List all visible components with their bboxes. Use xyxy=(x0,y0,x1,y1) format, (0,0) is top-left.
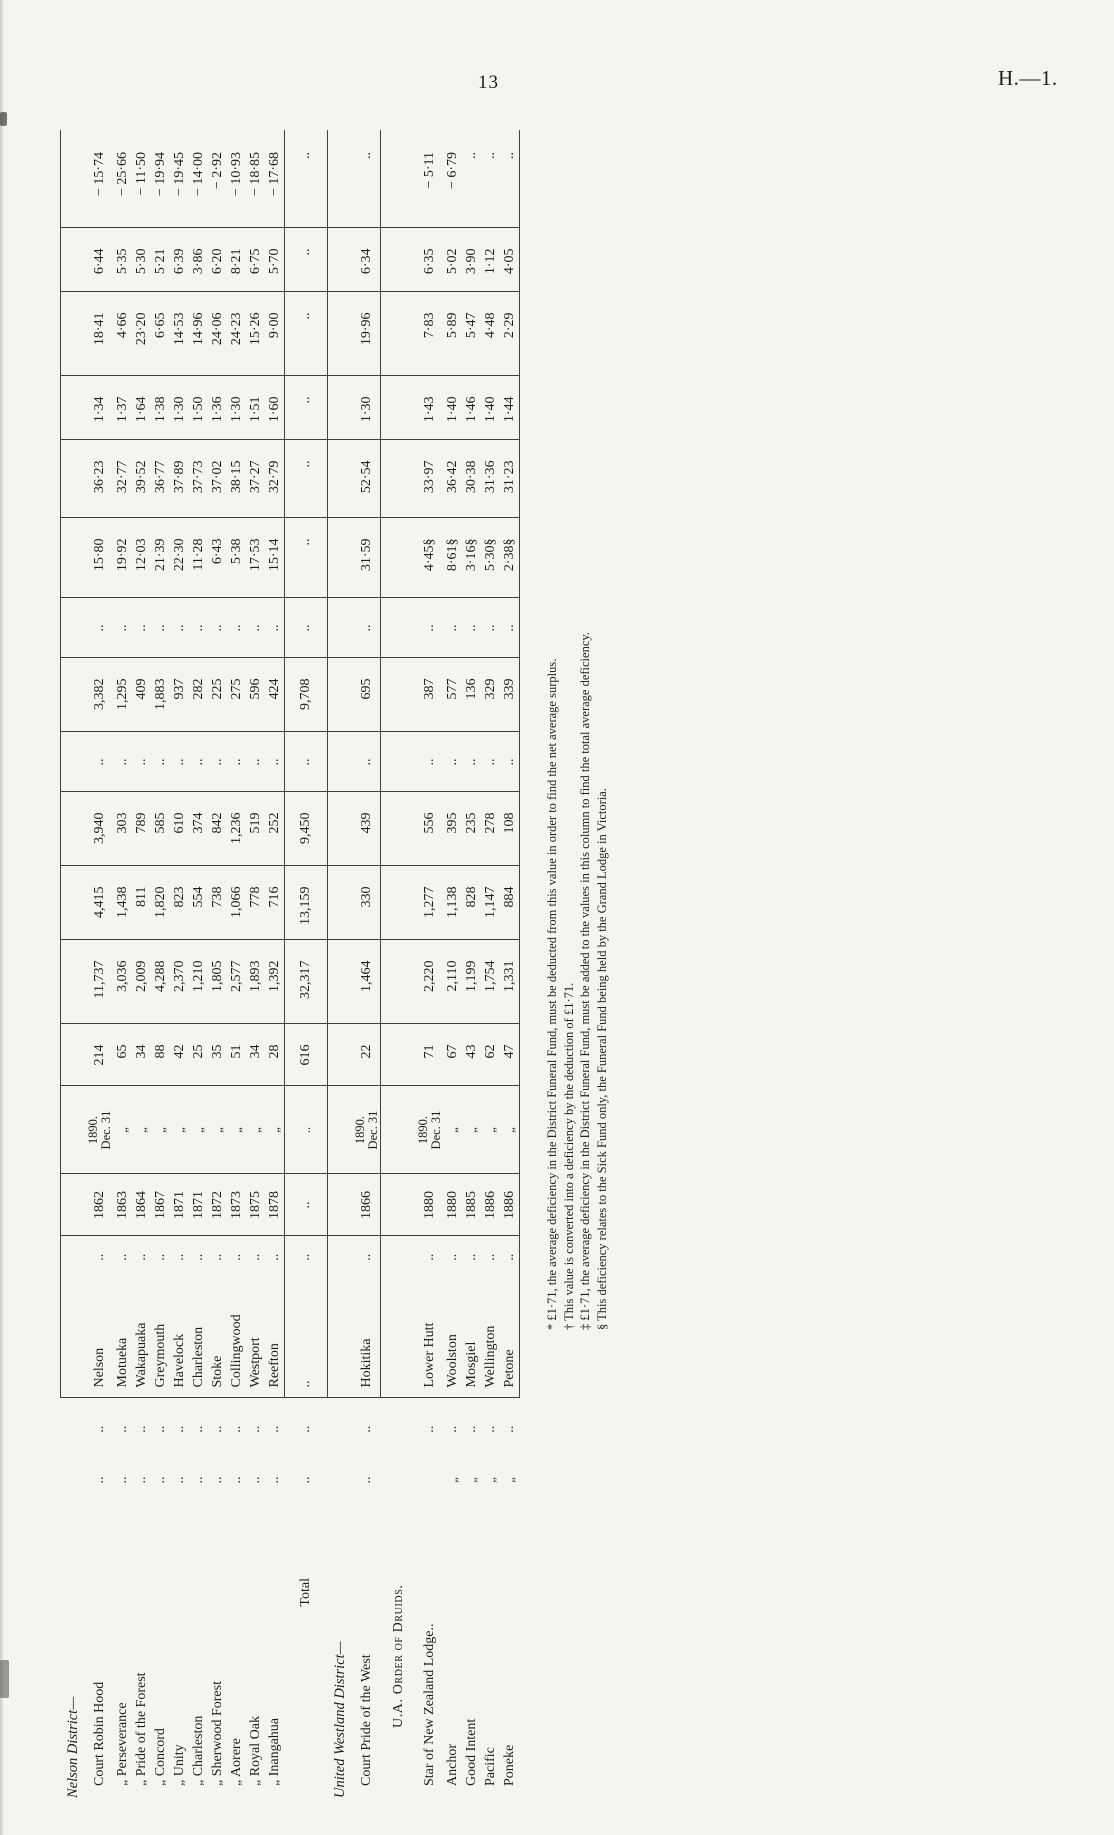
cell-c1: 2,370 xyxy=(170,940,189,1024)
cell-a2: 31·23 xyxy=(500,440,520,518)
cell-a6: − 2·92 xyxy=(208,130,227,228)
cell-d1 xyxy=(61,1460,88,1500)
cell-c4: 387 xyxy=(417,658,443,732)
cell-a4: 5·89 xyxy=(443,292,462,376)
cell-members: 43 xyxy=(462,1024,481,1086)
cell-place: Stoke xyxy=(208,1278,227,1398)
table-row: Pacific„..Wellington..1886„621,7541,1472… xyxy=(481,130,500,1800)
cell-d3: .. xyxy=(417,1236,443,1278)
cell-a1 xyxy=(381,518,418,598)
cell-a2: 39·52 xyxy=(132,440,151,518)
cell-a4: 14·96 xyxy=(189,292,208,376)
cell-c2: 716 xyxy=(265,866,285,940)
cell-a5 xyxy=(61,228,88,292)
cell-d1: „ xyxy=(443,1460,462,1500)
cell-a6: − 17·68 xyxy=(265,130,285,228)
table-row: „ Inangahua....Reefton..1878„281,3927162… xyxy=(265,130,285,1800)
cell-year: 1878 xyxy=(265,1174,285,1236)
cell-b2: .. xyxy=(227,598,246,658)
cell-c1: 2,577 xyxy=(227,940,246,1024)
cell-a5: 6·39 xyxy=(170,228,189,292)
cell-members xyxy=(328,1024,355,1086)
cell-c4: 424 xyxy=(265,658,285,732)
cell-a5: 8·21 xyxy=(227,228,246,292)
cell-year: 1872 xyxy=(208,1174,227,1236)
cell-a6: − 18·85 xyxy=(246,130,265,228)
cell-c3: 556 xyxy=(417,792,443,866)
cell-c1: 1,392 xyxy=(265,940,285,1024)
cell-c3: 610 xyxy=(170,792,189,866)
cell-b2: .. xyxy=(462,598,481,658)
cell-b1: .. xyxy=(265,732,285,792)
cell-name: Pacific xyxy=(481,1500,500,1800)
cell-c4 xyxy=(61,658,88,732)
cell-c2: 823 xyxy=(170,866,189,940)
cell-a4: .. xyxy=(285,292,328,376)
cell-members: 34 xyxy=(132,1024,151,1086)
cell-b1: .. xyxy=(246,732,265,792)
cell-b2: .. xyxy=(354,598,381,658)
cell-place xyxy=(328,1278,355,1398)
cell-b1: .. xyxy=(170,732,189,792)
cell-a1: 8·61§ xyxy=(443,518,462,598)
cell-b2 xyxy=(381,598,418,658)
cell-a3: 1·30 xyxy=(227,376,246,440)
cell-b1: .. xyxy=(151,732,170,792)
cell-d2 xyxy=(381,1398,418,1460)
cell-d2: .. xyxy=(132,1398,151,1460)
cell-members: 51 xyxy=(227,1024,246,1086)
table-row: Star of New Zealand Lodge....Lower Hutt.… xyxy=(417,130,443,1800)
cell-place: Woolston xyxy=(443,1278,462,1398)
cell-b2: .. xyxy=(170,598,189,658)
cell-a1: 12·03 xyxy=(132,518,151,598)
cell-a6: − 5·11 xyxy=(417,130,443,228)
cell-date: „ xyxy=(227,1086,246,1174)
cell-a2: 36·42 xyxy=(443,440,462,518)
cell-a2: 32·79 xyxy=(265,440,285,518)
cell-a5: 3·86 xyxy=(189,228,208,292)
cell-b2: .. xyxy=(87,598,113,658)
cell-members: 214 xyxy=(87,1024,113,1086)
footnote-total-deficiency: ‡ £1·71, the average deficiency in the D… xyxy=(577,130,594,1330)
cell-d3: .. xyxy=(132,1236,151,1278)
cell-a6: − 15·74 xyxy=(87,130,113,228)
cell-members: 47 xyxy=(500,1024,520,1086)
cell-place: Collingwood xyxy=(227,1278,246,1398)
cell-place: Motueka xyxy=(113,1278,132,1398)
table-row: Court Pride of the West....Hokitika..186… xyxy=(354,130,381,1800)
cell-b1 xyxy=(61,732,88,792)
cell-d1: .. xyxy=(265,1460,285,1500)
cell-d1 xyxy=(328,1460,355,1500)
cell-c2: 4,415 xyxy=(87,866,113,940)
cell-c2: 738 xyxy=(208,866,227,940)
cell-d2: .. xyxy=(354,1398,381,1460)
cell-a4: 14·53 xyxy=(170,292,189,376)
cell-a2: 30·38 xyxy=(462,440,481,518)
cell-b2: .. xyxy=(246,598,265,658)
cell-d3: .. xyxy=(208,1236,227,1278)
cell-a5 xyxy=(328,228,355,292)
cell-c2: 1,438 xyxy=(113,866,132,940)
cell-a2: 31·36 xyxy=(481,440,500,518)
cell-a6 xyxy=(381,130,418,228)
cell-c1: 1,893 xyxy=(246,940,265,1024)
cell-a6: .. xyxy=(500,130,520,228)
cell-c1: 1,210 xyxy=(189,940,208,1024)
cell-name: „ Inangahua xyxy=(265,1500,285,1800)
cell-c3: 9,450 xyxy=(285,792,328,866)
table-row: „ Pride of the Forest....Wakapuaka..1864… xyxy=(132,130,151,1800)
cell-d3: .. xyxy=(151,1236,170,1278)
cell-d3: .. xyxy=(265,1236,285,1278)
cell-a1: 21·39 xyxy=(151,518,170,598)
cell-c4: 596 xyxy=(246,658,265,732)
cell-b2: .. xyxy=(265,598,285,658)
cell-date xyxy=(328,1086,355,1174)
cell-d1: .. xyxy=(170,1460,189,1500)
cell-a3: 1·34 xyxy=(87,376,113,440)
cell-name: Court Pride of the West xyxy=(354,1500,381,1800)
cell-place: Havelock xyxy=(170,1278,189,1398)
cell-name: „ Royal Oak xyxy=(246,1500,265,1800)
cell-c3: 235 xyxy=(462,792,481,866)
cell-c2: 330 xyxy=(354,866,381,940)
table-body: Nelson District—Court Robin Hood....Nels… xyxy=(61,130,520,1800)
cell-a3: 1·64 xyxy=(132,376,151,440)
cell-c4: 1,883 xyxy=(151,658,170,732)
cell-d1: .. xyxy=(87,1460,113,1500)
cell-place xyxy=(61,1278,88,1398)
cell-d3: .. xyxy=(227,1236,246,1278)
cell-d2: .. xyxy=(246,1398,265,1460)
cell-date: „ xyxy=(189,1086,208,1174)
cell-date: „ xyxy=(462,1086,481,1174)
cell-a1: 5·38 xyxy=(227,518,246,598)
cell-a1: 15·80 xyxy=(87,518,113,598)
cell-a1: 31·59 xyxy=(354,518,381,598)
cell-a3 xyxy=(61,376,88,440)
cell-year: 1863 xyxy=(113,1174,132,1236)
cell-a3: 1·40 xyxy=(443,376,462,440)
cell-year xyxy=(328,1174,355,1236)
footnotes: * £1·71, the average deficiency in the D… xyxy=(544,130,610,1330)
cell-c3 xyxy=(328,792,355,866)
cell-c4: 9,708 xyxy=(285,658,328,732)
cell-d1: „ xyxy=(481,1460,500,1500)
cell-name: Total xyxy=(285,1500,328,1800)
scan-artifact xyxy=(0,1660,9,1698)
cell-b1: .. xyxy=(500,732,520,792)
table-row: „ Concord....Greymouth..1867„884,2881,82… xyxy=(151,130,170,1800)
cell-members: 25 xyxy=(189,1024,208,1086)
cell-c3: 3,940 xyxy=(87,792,113,866)
cell-a6: − 14·00 xyxy=(189,130,208,228)
cell-d1: .. xyxy=(113,1460,132,1500)
cell-a1: 5·30§ xyxy=(481,518,500,598)
cell-b2: .. xyxy=(500,598,520,658)
cell-a1: 6·43 xyxy=(208,518,227,598)
cell-d1: .. xyxy=(285,1460,328,1500)
cell-c4: 577 xyxy=(443,658,462,732)
cell-d2: .. xyxy=(87,1398,113,1460)
cell-c1 xyxy=(328,940,355,1024)
cell-a2: 52·54 xyxy=(354,440,381,518)
cell-date: „ xyxy=(246,1086,265,1174)
cell-a3: 1·36 xyxy=(208,376,227,440)
table-row: Good Intent„..Mosgiel..1885„431,19982823… xyxy=(462,130,481,1800)
cell-year: 1867 xyxy=(151,1174,170,1236)
cell-d3: .. xyxy=(246,1236,265,1278)
cell-c3: 374 xyxy=(189,792,208,866)
cell-c1: 1,331 xyxy=(500,940,520,1024)
cell-d2: .. xyxy=(443,1398,462,1460)
cell-a6: − 19·45 xyxy=(170,130,189,228)
cell-name: Anchor xyxy=(443,1500,462,1800)
cell-a2: 37·89 xyxy=(170,440,189,518)
cell-d3: .. xyxy=(285,1236,328,1278)
cell-members: 35 xyxy=(208,1024,227,1086)
cell-a4: 24·06 xyxy=(208,292,227,376)
cell-c2: 1,820 xyxy=(151,866,170,940)
cell-c4: 695 xyxy=(354,658,381,732)
cell-c2: 1,138 xyxy=(443,866,462,940)
cell-date: „ xyxy=(151,1086,170,1174)
table-row: „ Royal Oak....Westport..1875„341,893778… xyxy=(246,130,265,1800)
cell-a6: − 6·79 xyxy=(443,130,462,228)
table-row: Total............61632,31713,1599,450..9… xyxy=(285,130,328,1800)
cell-c1 xyxy=(61,940,88,1024)
cell-a2 xyxy=(61,440,88,518)
cell-a5: .. xyxy=(285,228,328,292)
cell-a1: 11·28 xyxy=(189,518,208,598)
cell-d1: .. xyxy=(151,1460,170,1500)
cell-d2: .. xyxy=(113,1398,132,1460)
cell-place: Petone xyxy=(500,1278,520,1398)
cell-a6: .. xyxy=(481,130,500,228)
cell-c4: 329 xyxy=(481,658,500,732)
cell-d1 xyxy=(417,1460,443,1500)
cell-a6: .. xyxy=(285,130,328,228)
cell-b2: .. xyxy=(443,598,462,658)
cell-a3: 1·44 xyxy=(500,376,520,440)
cell-a3: 1·30 xyxy=(354,376,381,440)
cell-c4: 225 xyxy=(208,658,227,732)
cell-d3: .. xyxy=(354,1236,381,1278)
cell-c3: 278 xyxy=(481,792,500,866)
cell-c3: 252 xyxy=(265,792,285,866)
cell-d1: .. xyxy=(132,1460,151,1500)
scanned-page: { "page": { "number": "13", "paper_ref":… xyxy=(0,0,1114,1835)
cell-members: 67 xyxy=(443,1024,462,1086)
cell-name: „ Charleston xyxy=(189,1500,208,1800)
cell-a6 xyxy=(61,130,88,228)
cell-a5: 1·12 xyxy=(481,228,500,292)
cell-c1: 1,464 xyxy=(354,940,381,1024)
cell-members: 71 xyxy=(417,1024,443,1086)
cell-a4: 24·23 xyxy=(227,292,246,376)
cell-b2: .. xyxy=(285,598,328,658)
cell-name: Good Intent xyxy=(462,1500,481,1800)
cell-d1: .. xyxy=(189,1460,208,1500)
cell-c4: 136 xyxy=(462,658,481,732)
cell-d2: .. xyxy=(500,1398,520,1460)
cell-d3 xyxy=(61,1236,88,1278)
cell-d1: .. xyxy=(208,1460,227,1500)
cell-c3: 519 xyxy=(246,792,265,866)
cell-c2: 13,159 xyxy=(285,866,328,940)
cell-c2: 1,066 xyxy=(227,866,246,940)
cell-d3: .. xyxy=(481,1236,500,1278)
cell-d3: .. xyxy=(113,1236,132,1278)
cell-place: Wakapuaka xyxy=(132,1278,151,1398)
cell-d1: .. xyxy=(246,1460,265,1500)
cell-a1: 4·45§ xyxy=(417,518,443,598)
cell-a5: 6·20 xyxy=(208,228,227,292)
cell-a1 xyxy=(328,518,355,598)
cell-year: 1873 xyxy=(227,1174,246,1236)
cell-b1: .. xyxy=(354,732,381,792)
cell-a6 xyxy=(328,130,355,228)
cell-a5 xyxy=(381,228,418,292)
cell-b2: .. xyxy=(113,598,132,658)
cell-d1 xyxy=(381,1460,418,1500)
table-row: „ Charleston....Charleston..1871„251,210… xyxy=(189,130,208,1800)
cell-a4: 18·41 xyxy=(87,292,113,376)
cell-d2: .. xyxy=(265,1398,285,1460)
cell-c4: 1,295 xyxy=(113,658,132,732)
table-row: „ Perseverance....Motueka..1863„653,0361… xyxy=(113,130,132,1800)
cell-place: Hokitika xyxy=(354,1278,381,1398)
cell-place: .. xyxy=(285,1278,328,1398)
cell-name: Poneke xyxy=(500,1500,520,1800)
table-row: „ Aorere....Collingwood..1873„512,5771,0… xyxy=(227,130,246,1800)
cell-place xyxy=(381,1278,418,1398)
cell-year: 1886 xyxy=(481,1174,500,1236)
cell-a1: 17·53 xyxy=(246,518,265,598)
cell-year: 1871 xyxy=(170,1174,189,1236)
cell-c2: 778 xyxy=(246,866,265,940)
cell-members: 28 xyxy=(265,1024,285,1086)
cell-year: 1866 xyxy=(354,1174,381,1236)
cell-d2: .. xyxy=(227,1398,246,1460)
cell-c1: 3,036 xyxy=(113,940,132,1024)
cell-name: „ Aorere xyxy=(227,1500,246,1800)
table-row: Court Robin Hood....Nelson..18621890. De… xyxy=(87,130,113,1800)
cell-a3: 1·46 xyxy=(462,376,481,440)
cell-place: Wellington xyxy=(481,1278,500,1398)
cell-date: 1890. Dec. 31 xyxy=(417,1086,443,1174)
cell-d2: .. xyxy=(170,1398,189,1460)
cell-c3 xyxy=(61,792,88,866)
cell-a4 xyxy=(328,292,355,376)
cell-a3 xyxy=(328,376,355,440)
cell-place: Mosgiel xyxy=(462,1278,481,1398)
cell-b1 xyxy=(381,732,418,792)
cell-place: Reefton xyxy=(265,1278,285,1398)
footnote-surplus: * £1·71, the average deficiency in the D… xyxy=(544,130,561,1330)
cell-members: 22 xyxy=(354,1024,381,1086)
cell-a1: 15·14 xyxy=(265,518,285,598)
cell-name: „ Sherwood Forest xyxy=(208,1500,227,1800)
cell-a3: .. xyxy=(285,376,328,440)
cell-a3: 1·60 xyxy=(265,376,285,440)
cell-b1: .. xyxy=(208,732,227,792)
cell-c3: 108 xyxy=(500,792,520,866)
cell-name: „ Perseverance xyxy=(113,1500,132,1800)
cell-date: 1890. Dec. 31 xyxy=(87,1086,113,1174)
cell-d3: .. xyxy=(87,1236,113,1278)
cell-name: Star of New Zealand Lodge.. xyxy=(417,1500,443,1800)
cell-a2: 37·02 xyxy=(208,440,227,518)
table-row: United Westland District— xyxy=(328,130,355,1800)
cell-d2: .. xyxy=(285,1398,328,1460)
cell-a6: .. xyxy=(354,130,381,228)
cell-date: „ xyxy=(443,1086,462,1174)
cell-year: 1885 xyxy=(462,1174,481,1236)
cell-a6: − 19·94 xyxy=(151,130,170,228)
cell-a1: 2·38§ xyxy=(500,518,520,598)
cell-c1: 1,805 xyxy=(208,940,227,1024)
cell-b1: .. xyxy=(462,732,481,792)
cell-a4: 7·83 xyxy=(417,292,443,376)
cell-date: „ xyxy=(481,1086,500,1174)
cell-a3: 1·37 xyxy=(113,376,132,440)
cell-b1: .. xyxy=(443,732,462,792)
cell-d2: .. xyxy=(151,1398,170,1460)
cell-b1: .. xyxy=(189,732,208,792)
cell-members: 65 xyxy=(113,1024,132,1086)
cell-a2: 36·23 xyxy=(87,440,113,518)
cell-a1: 19·92 xyxy=(113,518,132,598)
cell-c4 xyxy=(328,658,355,732)
cell-a3: 1·38 xyxy=(151,376,170,440)
cell-date: „ xyxy=(208,1086,227,1174)
cell-place: Charleston xyxy=(189,1278,208,1398)
cell-d2: .. xyxy=(208,1398,227,1460)
cell-a4: 4·66 xyxy=(113,292,132,376)
cell-c4: 3,382 xyxy=(87,658,113,732)
cell-a1: 3·16§ xyxy=(462,518,481,598)
cell-b2: .. xyxy=(189,598,208,658)
cell-place: Westport xyxy=(246,1278,265,1398)
cell-a4: 2·29 xyxy=(500,292,520,376)
cell-a5: 5·70 xyxy=(265,228,285,292)
cell-a4: 23·20 xyxy=(132,292,151,376)
cell-date: 1890. Dec. 31 xyxy=(354,1086,381,1174)
cell-a3: 1·43 xyxy=(417,376,443,440)
cell-a3: 1·51 xyxy=(246,376,265,440)
cell-a6: − 10·93 xyxy=(227,130,246,228)
cell-name: Nelson District— xyxy=(61,1500,88,1800)
cell-c2 xyxy=(381,866,418,940)
cell-c2: 554 xyxy=(189,866,208,940)
rotated-table-block: Nelson District—Court Robin Hood....Nels… xyxy=(60,130,640,1800)
cell-d3: .. xyxy=(500,1236,520,1278)
page-number: 13 xyxy=(478,72,499,94)
cell-year: 1862 xyxy=(87,1174,113,1236)
cell-d3: .. xyxy=(462,1236,481,1278)
cell-c2: 811 xyxy=(132,866,151,940)
cell-a5: 6·44 xyxy=(87,228,113,292)
cell-d3: .. xyxy=(170,1236,189,1278)
valuation-table: Nelson District—Court Robin Hood....Nels… xyxy=(60,130,520,1800)
cell-b1: .. xyxy=(417,732,443,792)
cell-year: .. xyxy=(285,1174,328,1236)
cell-members xyxy=(61,1024,88,1086)
cell-a5: 5·35 xyxy=(113,228,132,292)
